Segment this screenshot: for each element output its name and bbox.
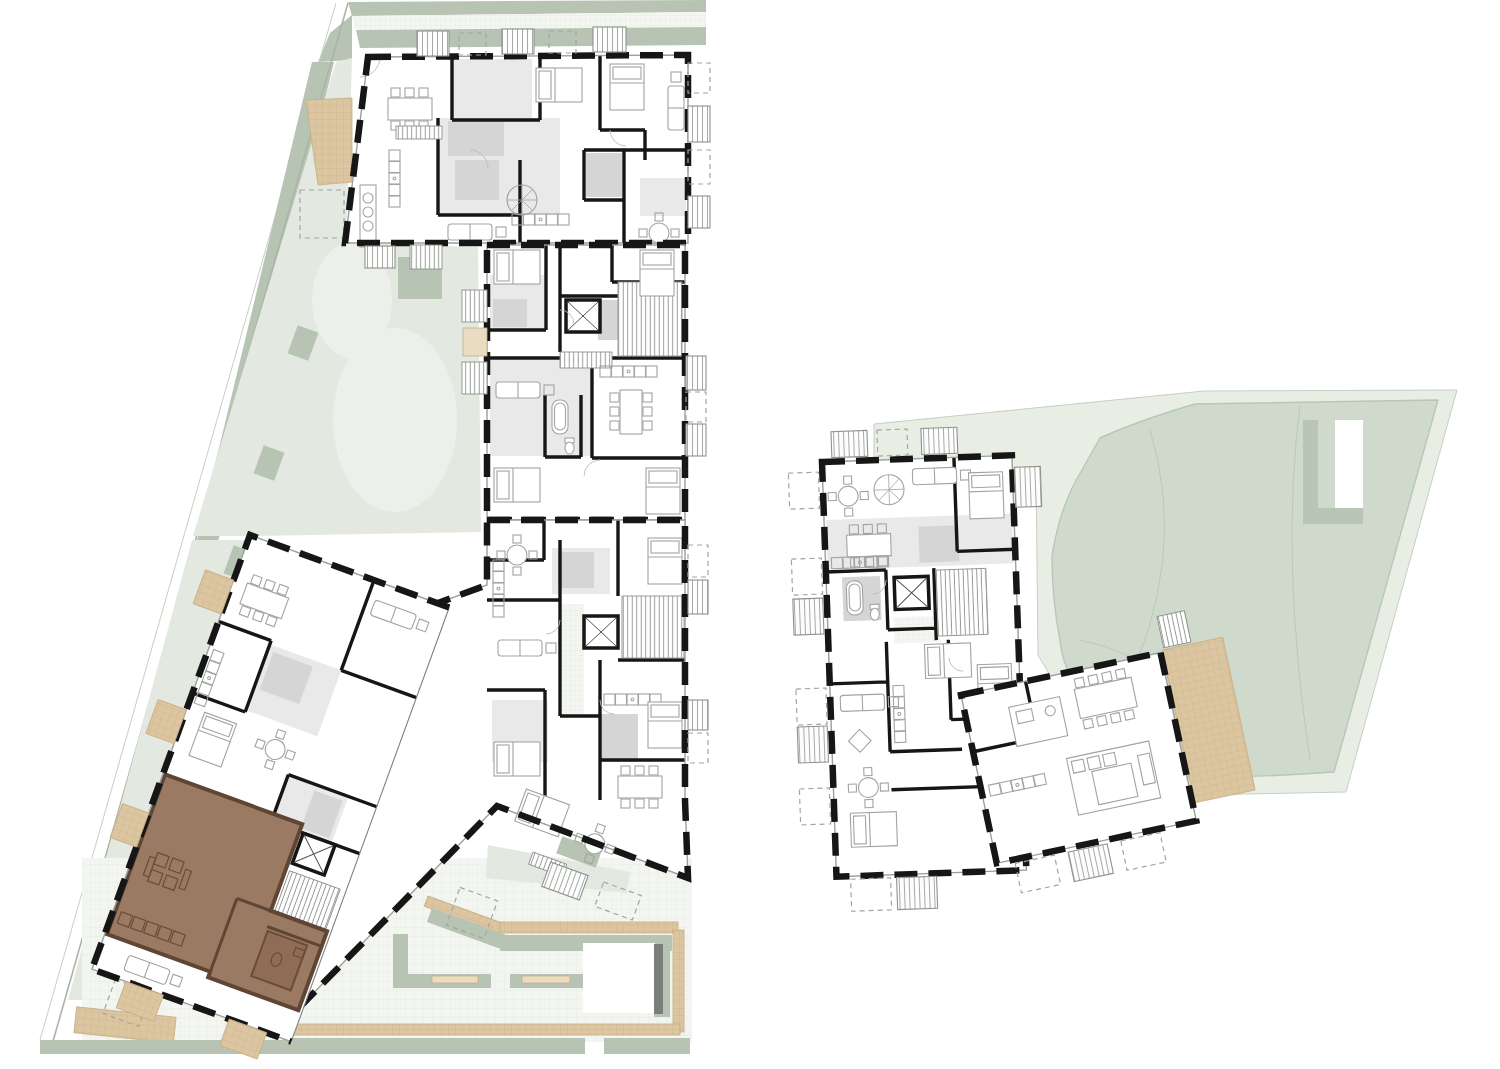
dashed-balcony <box>799 788 830 825</box>
bathroom <box>586 153 622 197</box>
toilet <box>565 438 574 454</box>
sage-band <box>604 1038 690 1054</box>
spiral-stair <box>873 474 904 505</box>
balcony <box>797 726 828 763</box>
tan-strip-bottom <box>283 1024 680 1035</box>
kitchen-room <box>640 178 686 216</box>
middle-block <box>462 245 688 520</box>
bed <box>610 64 644 110</box>
park-white-court <box>1335 420 1363 508</box>
dashed-balcony <box>688 63 710 93</box>
balcony <box>793 598 824 635</box>
bed <box>968 472 1004 519</box>
balcony <box>1014 466 1041 507</box>
elevator <box>584 616 618 648</box>
balcony <box>417 31 449 56</box>
bathtub <box>846 581 863 616</box>
site-plan-drawing <box>0 0 1500 1069</box>
balcony <box>686 424 706 456</box>
bench <box>522 976 570 983</box>
north-sage-wedge <box>318 15 352 62</box>
balcony <box>831 430 868 457</box>
stairs <box>936 568 988 636</box>
bathtub <box>552 400 568 434</box>
garden-stairs <box>410 245 442 269</box>
hall-room <box>452 59 532 119</box>
site-plan-canvas <box>0 0 1500 1069</box>
bed <box>494 250 540 284</box>
bench <box>432 976 478 983</box>
bed <box>648 538 682 584</box>
bed <box>646 468 680 514</box>
dashed-balcony <box>851 878 892 911</box>
dashed-balcony <box>686 392 706 422</box>
bed <box>648 702 682 748</box>
sage-band <box>283 1038 585 1054</box>
tan-strip-top <box>500 922 678 933</box>
bed <box>640 250 674 296</box>
balcony <box>502 29 534 54</box>
balcony <box>688 580 708 614</box>
garden-stairs <box>462 362 487 394</box>
balcony <box>688 700 708 730</box>
bathroom <box>493 299 527 327</box>
porch <box>463 328 487 356</box>
balcony <box>593 27 626 52</box>
courtyard-white-square <box>583 943 655 1013</box>
balcony <box>688 196 710 228</box>
counter-table <box>360 185 376 247</box>
bathroom <box>600 714 638 762</box>
toilet <box>870 604 880 620</box>
north-block <box>345 55 688 253</box>
bed <box>924 643 971 679</box>
bed <box>850 812 897 848</box>
garden-stairs <box>1157 611 1191 648</box>
spiral-stair <box>507 185 537 215</box>
balcony <box>688 106 710 142</box>
stairs <box>622 596 684 658</box>
dashed-balcony <box>688 150 710 184</box>
bathroom <box>918 525 959 562</box>
dark-planter-bar <box>654 944 663 1014</box>
dashed-balcony <box>688 545 708 577</box>
corridor <box>562 604 584 714</box>
balcony <box>897 876 938 909</box>
balcony <box>1068 844 1113 882</box>
bathroom <box>558 552 594 588</box>
stairs <box>396 126 442 139</box>
dashed-balcony <box>796 688 827 725</box>
tan-strip-right <box>673 930 684 1032</box>
balcony <box>921 427 958 454</box>
garden-stairs <box>462 290 487 322</box>
balcony <box>686 356 706 390</box>
bed <box>536 68 582 102</box>
dashed-balcony <box>791 558 822 595</box>
bed <box>494 468 540 502</box>
living-room-grey <box>490 360 592 456</box>
balcony <box>365 246 395 268</box>
elevator <box>894 576 929 609</box>
bathroom <box>455 160 499 200</box>
dashed-balcony <box>788 472 819 509</box>
dashed-balcony <box>688 733 708 763</box>
bed <box>494 742 540 776</box>
